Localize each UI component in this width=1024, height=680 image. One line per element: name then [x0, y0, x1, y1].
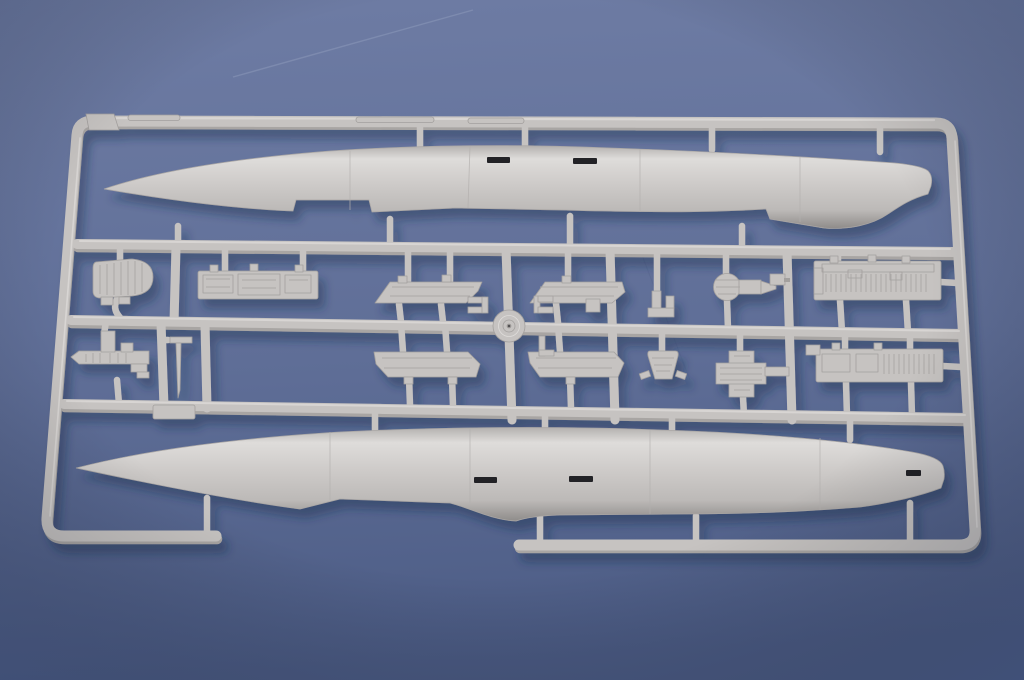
sprue-photo: Photograph of a gray injection-molded pl…	[0, 0, 1024, 680]
vignette	[0, 0, 1024, 680]
photo-canvas: Photograph of a gray injection-molded pl…	[0, 0, 1024, 680]
